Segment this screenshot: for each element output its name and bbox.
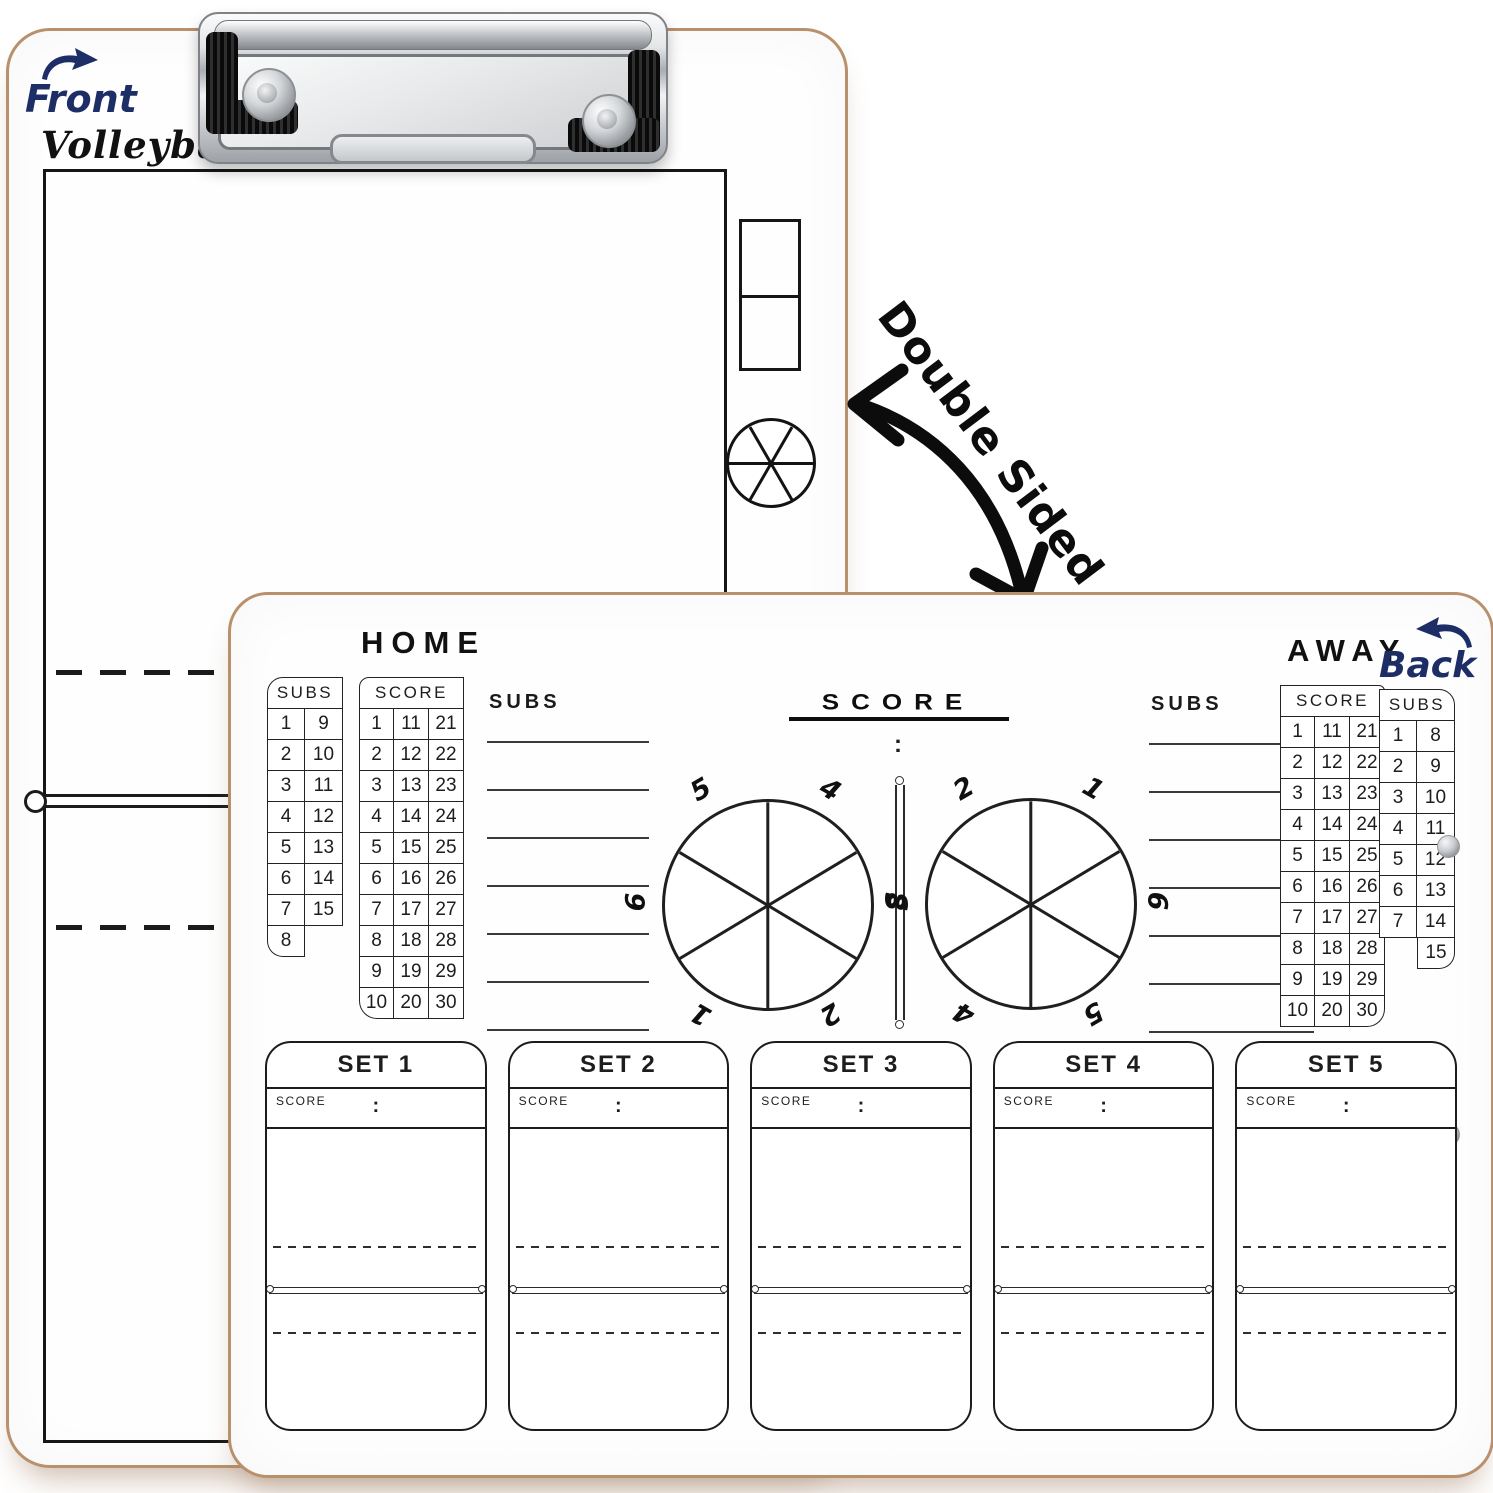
table-cell: 21 xyxy=(429,709,464,740)
table-cell: 15 xyxy=(305,895,343,926)
table-cell: 26 xyxy=(429,864,464,895)
table-cell: 1 xyxy=(267,709,305,740)
table-cell xyxy=(1379,938,1417,969)
front-side-label: Front xyxy=(25,77,137,121)
table-cell: 22 xyxy=(429,740,464,771)
center-score-colon: : xyxy=(888,731,908,759)
product-photo-canvas: Front Volleyball xyxy=(0,0,1493,1493)
table-row: 8 xyxy=(267,926,343,957)
net-line xyxy=(754,1287,968,1294)
table-cell: 10 xyxy=(1417,783,1455,814)
net-line xyxy=(997,1287,1211,1294)
rotation-number: 5 xyxy=(1077,995,1109,1031)
table-cell: 2 xyxy=(359,740,394,771)
table-cell: 10 xyxy=(359,988,394,1019)
table-row: 41424 xyxy=(1280,810,1385,841)
table-row: 102030 xyxy=(1280,996,1385,1027)
attack-line-dashed xyxy=(1001,1246,1207,1248)
table-row: 412 xyxy=(267,802,343,833)
table-cell: 3 xyxy=(1379,783,1417,814)
table-cell: 28 xyxy=(429,926,464,957)
net-line xyxy=(512,1287,726,1294)
board-screw-icon xyxy=(1437,835,1460,858)
attack-line-dashed xyxy=(1243,1246,1449,1248)
substitution-box-divider xyxy=(742,295,798,298)
net-line xyxy=(1239,1287,1453,1294)
subs-writing-line xyxy=(487,983,649,1031)
table-cell: 29 xyxy=(429,957,464,988)
clip-top-bar xyxy=(214,20,652,50)
center-score-title: SCORE xyxy=(783,689,1013,715)
table-cell: 10 xyxy=(305,740,343,771)
attack-line-dashed xyxy=(273,1246,479,1248)
table-cell: 7 xyxy=(267,895,305,926)
home-subs-writing-lines xyxy=(487,695,649,1031)
table-row: 613 xyxy=(1379,876,1455,907)
table-cell: 13 xyxy=(1315,779,1350,810)
table-cell: 12 xyxy=(394,740,429,771)
table-cell: 3 xyxy=(267,771,305,802)
table-cell: 15 xyxy=(394,833,429,864)
set-court-diagram xyxy=(267,1129,485,1429)
set-score-row: SCORE : xyxy=(995,1089,1213,1129)
table-row: 715 xyxy=(267,895,343,926)
clip-rivet-icon xyxy=(242,68,296,122)
table-cell: 2 xyxy=(1280,748,1315,779)
table-row: 311 xyxy=(267,771,343,802)
table-row: 102030 xyxy=(359,988,464,1019)
home-score-header: SCORE xyxy=(359,677,464,709)
table-cell: 13 xyxy=(305,833,343,864)
table-cell: 30 xyxy=(429,988,464,1019)
rotation-number: 5 xyxy=(685,772,717,808)
set-score-row: SCORE : xyxy=(510,1089,728,1129)
table-cell: 2 xyxy=(267,740,305,771)
attack-line-dashed xyxy=(758,1246,964,1248)
away-subs-header: SUBS xyxy=(1379,689,1455,721)
set-title: SET 1 xyxy=(267,1043,485,1089)
net-pole-knob xyxy=(895,1020,904,1029)
table-row: 21222 xyxy=(1280,748,1385,779)
table-cell: 9 xyxy=(305,709,343,740)
table-cell: 20 xyxy=(394,988,429,1019)
table-cell: 2 xyxy=(1379,752,1417,783)
table-cell: 25 xyxy=(429,833,464,864)
table-row: 210 xyxy=(267,740,343,771)
subs-writing-line xyxy=(487,743,649,791)
table-cell: 30 xyxy=(1350,996,1385,1027)
table-row: 21222 xyxy=(359,740,464,771)
rotation-number: 2 xyxy=(948,771,980,807)
set-box: SET 3 SCORE : xyxy=(750,1041,972,1431)
table-cell: 7 xyxy=(1280,903,1315,934)
table-cell: 10 xyxy=(1280,996,1315,1027)
rotation-number: 4 xyxy=(814,772,846,808)
sets-row: SET 1 SCORE : SET 2 SCORE : xyxy=(265,1041,1457,1431)
table-cell: 20 xyxy=(1315,996,1350,1027)
back-board: HOME AWAY Back SUBS 19210311412513614715… xyxy=(228,592,1493,1478)
table-cell: 14 xyxy=(305,864,343,895)
center-score-underline xyxy=(789,717,1009,721)
table-row: 310 xyxy=(1379,783,1455,814)
table-cell: 1 xyxy=(1379,721,1417,752)
table-cell: 9 xyxy=(1417,752,1455,783)
rotation-number: 1 xyxy=(1077,771,1109,807)
table-cell: 1 xyxy=(1280,717,1315,748)
set-score-row: SCORE : xyxy=(752,1089,970,1129)
table-cell: 4 xyxy=(267,802,305,833)
set-title: SET 4 xyxy=(995,1043,1213,1089)
table-cell: 15 xyxy=(1315,841,1350,872)
home-rotation-circle xyxy=(662,799,874,1011)
table-cell: 11 xyxy=(394,709,429,740)
set-score-row: SCORE : xyxy=(267,1089,485,1129)
table-cell: 7 xyxy=(359,895,394,926)
table-row: 51525 xyxy=(359,833,464,864)
table-cell: 29 xyxy=(1350,965,1385,996)
rotation-number: 6 xyxy=(621,893,652,912)
table-cell: 4 xyxy=(359,802,394,833)
rotation-wheel-icon xyxy=(726,418,816,508)
set-court-diagram xyxy=(752,1129,970,1429)
set-box: SET 4 SCORE : xyxy=(993,1041,1215,1431)
clip-rivet-icon xyxy=(582,94,636,148)
attack-line-dashed xyxy=(516,1332,722,1334)
table-row: 61626 xyxy=(359,864,464,895)
table-cell: 16 xyxy=(394,864,429,895)
table-cell: 15 xyxy=(1417,938,1455,969)
table-row: 81828 xyxy=(359,926,464,957)
table-cell: 8 xyxy=(1280,934,1315,965)
table-cell: 9 xyxy=(1280,965,1315,996)
table-cell: 11 xyxy=(305,771,343,802)
table-cell: 12 xyxy=(305,802,343,833)
away-subs-table: SUBS 182931041151261371415 xyxy=(1379,689,1455,969)
table-cell: 5 xyxy=(1379,845,1417,876)
table-row: 18 xyxy=(1379,721,1455,752)
table-cell: 17 xyxy=(394,895,429,926)
set-title: SET 2 xyxy=(510,1043,728,1089)
set-box: SET 1 SCORE : xyxy=(265,1041,487,1431)
table-cell: 14 xyxy=(1417,907,1455,938)
table-cell: 18 xyxy=(394,926,429,957)
table-cell: 18 xyxy=(1315,934,1350,965)
table-cell: 6 xyxy=(267,864,305,895)
table-cell: 14 xyxy=(394,802,429,833)
table-row: 29 xyxy=(1379,752,1455,783)
away-score-table: SCORE 1112121222313234142451525616267172… xyxy=(1280,685,1385,1027)
set-title: SET 3 xyxy=(752,1043,970,1089)
subs-writing-line xyxy=(487,935,649,983)
clip-handle xyxy=(330,134,536,164)
table-row: 614 xyxy=(267,864,343,895)
rotation-number: 3 xyxy=(884,892,915,911)
attack-line-dashed xyxy=(758,1332,964,1334)
table-row: 71727 xyxy=(1280,903,1385,934)
table-cell: 11 xyxy=(1315,717,1350,748)
table-row: 31323 xyxy=(1280,779,1385,810)
attack-line-dashed xyxy=(1001,1332,1207,1334)
home-subs-header: SUBS xyxy=(267,677,343,709)
net-line xyxy=(269,1287,483,1294)
table-cell xyxy=(305,926,343,957)
set-box: SET 2 SCORE : xyxy=(508,1041,730,1431)
attack-line-dashed xyxy=(516,1246,722,1248)
net-post-icon xyxy=(24,790,47,813)
table-cell: 4 xyxy=(1379,814,1417,845)
table-cell: 6 xyxy=(359,864,394,895)
set-score-row: SCORE : xyxy=(1237,1089,1455,1129)
substitution-boxes xyxy=(739,219,801,371)
table-row: 81828 xyxy=(1280,934,1385,965)
table-row: 41424 xyxy=(359,802,464,833)
table-cell: 19 xyxy=(1315,965,1350,996)
subs-writing-line xyxy=(487,695,649,743)
set-court-diagram xyxy=(1237,1129,1455,1429)
set-title: SET 5 xyxy=(1237,1043,1455,1089)
away-score-header: SCORE xyxy=(1280,685,1385,717)
table-cell: 1 xyxy=(359,709,394,740)
table-row: 91929 xyxy=(359,957,464,988)
away-rotation-circle xyxy=(925,798,1137,1010)
table-cell: 3 xyxy=(359,771,394,802)
table-cell: 13 xyxy=(394,771,429,802)
table-row: 15 xyxy=(1379,938,1455,969)
rotation-number: 1 xyxy=(685,996,717,1032)
table-cell: 24 xyxy=(429,802,464,833)
table-row: 513 xyxy=(267,833,343,864)
set-box: SET 5 SCORE : xyxy=(1235,1041,1457,1431)
table-cell: 5 xyxy=(1280,841,1315,872)
table-row: 11121 xyxy=(359,709,464,740)
table-cell: 8 xyxy=(267,926,305,957)
attack-line-dashed xyxy=(273,1332,479,1334)
rotation-number: 2 xyxy=(814,996,846,1032)
table-cell: 9 xyxy=(359,957,394,988)
table-row: 71727 xyxy=(359,895,464,926)
set-court-diagram xyxy=(995,1129,1213,1429)
table-row: 19 xyxy=(267,709,343,740)
set-court-diagram xyxy=(510,1129,728,1429)
rotation-number: 4 xyxy=(948,995,980,1031)
table-cell: 6 xyxy=(1379,876,1417,907)
table-row: 714 xyxy=(1379,907,1455,938)
table-cell: 5 xyxy=(267,833,305,864)
table-row: 51525 xyxy=(1280,841,1385,872)
subs-writing-line xyxy=(487,839,649,887)
table-cell: 12 xyxy=(1315,748,1350,779)
attack-line-dashed xyxy=(1243,1332,1449,1334)
table-row: 11121 xyxy=(1280,717,1385,748)
table-cell: 8 xyxy=(1417,721,1455,752)
subs-writing-line xyxy=(487,791,649,839)
table-cell: 13 xyxy=(1417,876,1455,907)
table-cell: 3 xyxy=(1280,779,1315,810)
table-row: 91929 xyxy=(1280,965,1385,996)
table-cell: 16 xyxy=(1315,872,1350,903)
net-pole-knob xyxy=(895,776,904,785)
home-title: HOME xyxy=(361,625,486,661)
table-cell: 17 xyxy=(1315,903,1350,934)
table-cell: 23 xyxy=(429,771,464,802)
table-cell: 4 xyxy=(1280,810,1315,841)
table-row: 31323 xyxy=(359,771,464,802)
table-cell: 27 xyxy=(429,895,464,926)
back-side-label: Back xyxy=(1379,645,1476,686)
table-row: 61626 xyxy=(1280,872,1385,903)
clipboard-clip xyxy=(198,12,668,164)
table-cell: 6 xyxy=(1280,872,1315,903)
table-cell: 19 xyxy=(394,957,429,988)
table-cell: 7 xyxy=(1379,907,1417,938)
table-cell: 5 xyxy=(359,833,394,864)
home-score-table: SCORE 1112121222313234142451525616267172… xyxy=(359,677,464,1019)
home-subs-table: SUBS 192103114125136147158 xyxy=(267,677,343,957)
table-cell: 14 xyxy=(1315,810,1350,841)
table-cell: 8 xyxy=(359,926,394,957)
